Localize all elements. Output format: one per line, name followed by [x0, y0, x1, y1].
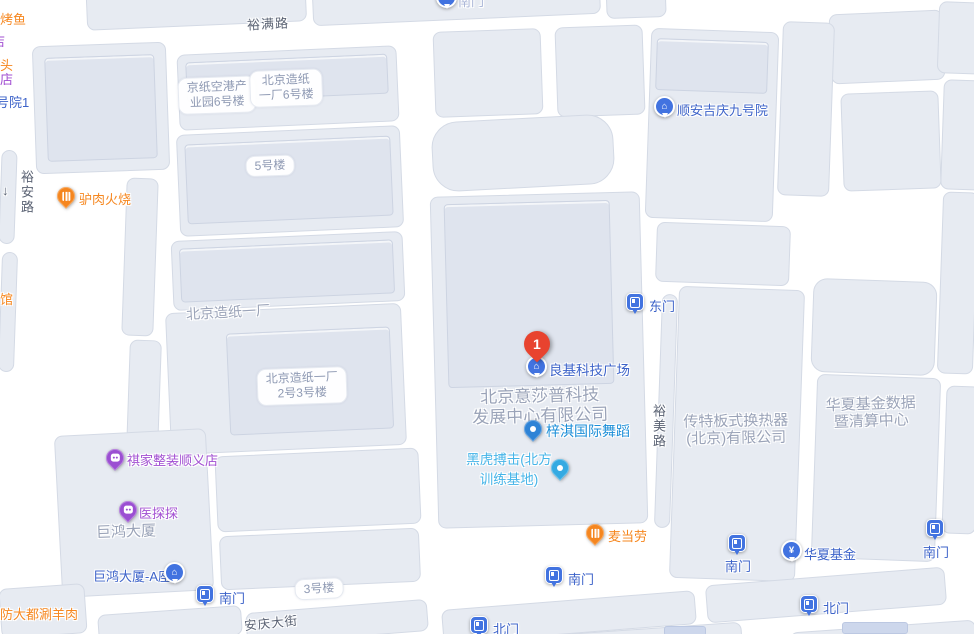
road-label-yuan: 裕安路	[17, 170, 36, 215]
map-block	[840, 90, 941, 191]
building-icon: ⌂	[662, 102, 668, 112]
poi-line: 训练基地)	[466, 468, 552, 488]
map-block	[311, 0, 601, 26]
building-pill-zaozhi6: 北京造纸 一厂6号楼	[249, 68, 323, 107]
building	[44, 54, 158, 162]
shop-face-icon	[124, 506, 133, 514]
map-block	[605, 0, 666, 19]
poi-label-mcdonalds[interactable]: 麦当劳	[608, 526, 647, 545]
poi-label-dian-partial[interactable]: 店	[0, 31, 5, 50]
gate-icon	[630, 297, 640, 308]
map-block	[940, 79, 974, 191]
map-block	[810, 278, 937, 376]
gate-label-south[interactable]: 南门	[923, 542, 949, 561]
building	[664, 626, 706, 634]
area-line: 传特板式换热器	[683, 412, 788, 431]
gate-label-top-partial[interactable]: 南门	[458, 0, 484, 10]
poi-line: 黑虎搏击(北方	[466, 448, 552, 468]
map-block	[937, 1, 974, 75]
gate-pin-south[interactable]	[926, 519, 944, 537]
dot-icon	[557, 465, 563, 471]
gate-icon	[200, 589, 210, 600]
gate-label-south[interactable]: 南门	[725, 556, 751, 575]
poi-label-yitantan[interactable]: 医探探	[139, 503, 178, 522]
building-pill-3: 3号楼	[294, 577, 344, 601]
gate-icon	[549, 570, 559, 581]
gate-label-east[interactable]: 东门	[649, 296, 675, 315]
pill-line: 业园6号楼	[187, 94, 248, 111]
fork-knife-icon	[62, 192, 70, 201]
restaurant-pin[interactable]	[53, 183, 78, 208]
building-pin-juhong-a[interactable]: ⌂	[164, 562, 185, 583]
area-label-chuante: 传特板式换热器 (北京)有限公司	[683, 412, 789, 448]
area-label-juhong: 巨鸿大厦	[96, 522, 157, 541]
building	[184, 136, 393, 225]
gate-icon	[474, 620, 484, 631]
poi-label-shunan[interactable]: 顺安吉庆九号院	[677, 100, 768, 119]
poi-label-kaoyu[interactable]: 烤鱼	[0, 9, 26, 28]
map-block	[214, 448, 421, 533]
building	[179, 239, 395, 302]
poi-label-heihu[interactable]: 黑虎搏击(北方 训练基地)	[466, 448, 552, 488]
poi-label-shuanyangrou[interactable]: 防大都涮羊肉	[0, 604, 78, 623]
poi-label-liangji[interactable]: 良基科技广场	[549, 359, 630, 379]
building	[655, 38, 769, 94]
poi-label-huaxia-fund[interactable]: 华夏基金	[804, 544, 856, 563]
map-block	[433, 28, 544, 118]
building-icon: ⌂	[534, 362, 540, 372]
gate-icon	[732, 538, 742, 549]
gate-label-north[interactable]: 北门	[493, 619, 519, 634]
poi-label-dian[interactable]: 店	[0, 69, 13, 88]
poi-label-guan[interactable]: 馆	[0, 289, 13, 308]
area-line: 暨清算中心	[826, 411, 917, 431]
fork-knife-icon	[591, 529, 599, 538]
poi-label-ziqi[interactable]: 梓淇国际舞蹈	[546, 421, 630, 441]
road-arrow-icon: ↓	[2, 183, 9, 198]
gate-icon	[930, 523, 940, 534]
gate-pin-north[interactable]	[470, 616, 488, 634]
building-pill-5: 5号楼	[245, 154, 294, 177]
map-canvas[interactable]: 裕满路 裕安路 ↓ 裕美路 安庆大街 京纸空港产 业园6号楼 北京造纸 一厂6号…	[0, 0, 974, 634]
shop-face-icon	[111, 454, 120, 462]
poi-label-qijia[interactable]: 祺家整装顺义店	[127, 450, 218, 469]
marker-number: 1	[533, 336, 541, 352]
poi-label-haoyuan1[interactable]: 号院1	[0, 92, 29, 111]
dot-icon	[530, 426, 536, 432]
area-label-huaxia-data: 华夏基金数据 暨清算中心	[825, 394, 916, 432]
area-line: (北京)有限公司	[684, 429, 789, 448]
building-icon: ⌂	[172, 568, 178, 578]
building-pin-shunan[interactable]: ⌂	[654, 96, 675, 117]
map-block	[0, 252, 18, 372]
pill-line: 北京造纸一厂	[265, 369, 338, 387]
road-label-yumei: 裕美路	[649, 404, 668, 449]
map-block	[941, 385, 974, 534]
building	[842, 622, 908, 634]
gate-label-south[interactable]: 南门	[568, 569, 594, 588]
poi-label-juhong-a[interactable]: 巨鸿大厦-A座	[93, 566, 171, 585]
gate-pin-north[interactable]	[800, 595, 818, 613]
gate-label-north[interactable]: 北门	[823, 598, 849, 617]
map-block	[430, 113, 615, 192]
pill-line: 一厂6号楼	[259, 87, 314, 104]
road-label-yuman: 裕满路	[247, 12, 290, 33]
building-pill-zaozhi23: 北京造纸一厂 2号3号楼	[256, 366, 347, 406]
map-block	[97, 605, 243, 634]
map-block	[554, 24, 645, 117]
finance-pin-huaxia[interactable]: ¥	[781, 540, 802, 561]
map-block	[777, 21, 835, 197]
gate-pin-south[interactable]	[728, 534, 746, 552]
map-block	[655, 222, 791, 287]
building-pill-jingzhi: 京纸空港产 业园6号楼	[177, 75, 256, 114]
map-block	[829, 10, 946, 85]
gate-label-south[interactable]: 南门	[219, 588, 245, 607]
gate-icon	[804, 599, 814, 610]
yen-icon: ¥	[789, 546, 794, 556]
map-block	[937, 191, 974, 374]
gate-pin-south[interactable]	[545, 566, 563, 584]
gate-pin-east[interactable]	[626, 293, 644, 311]
pill-line: 2号3号楼	[266, 385, 339, 403]
gate-pin-south[interactable]	[196, 585, 214, 603]
poi-label-lvrou[interactable]: 驴肉火烧	[79, 189, 131, 208]
